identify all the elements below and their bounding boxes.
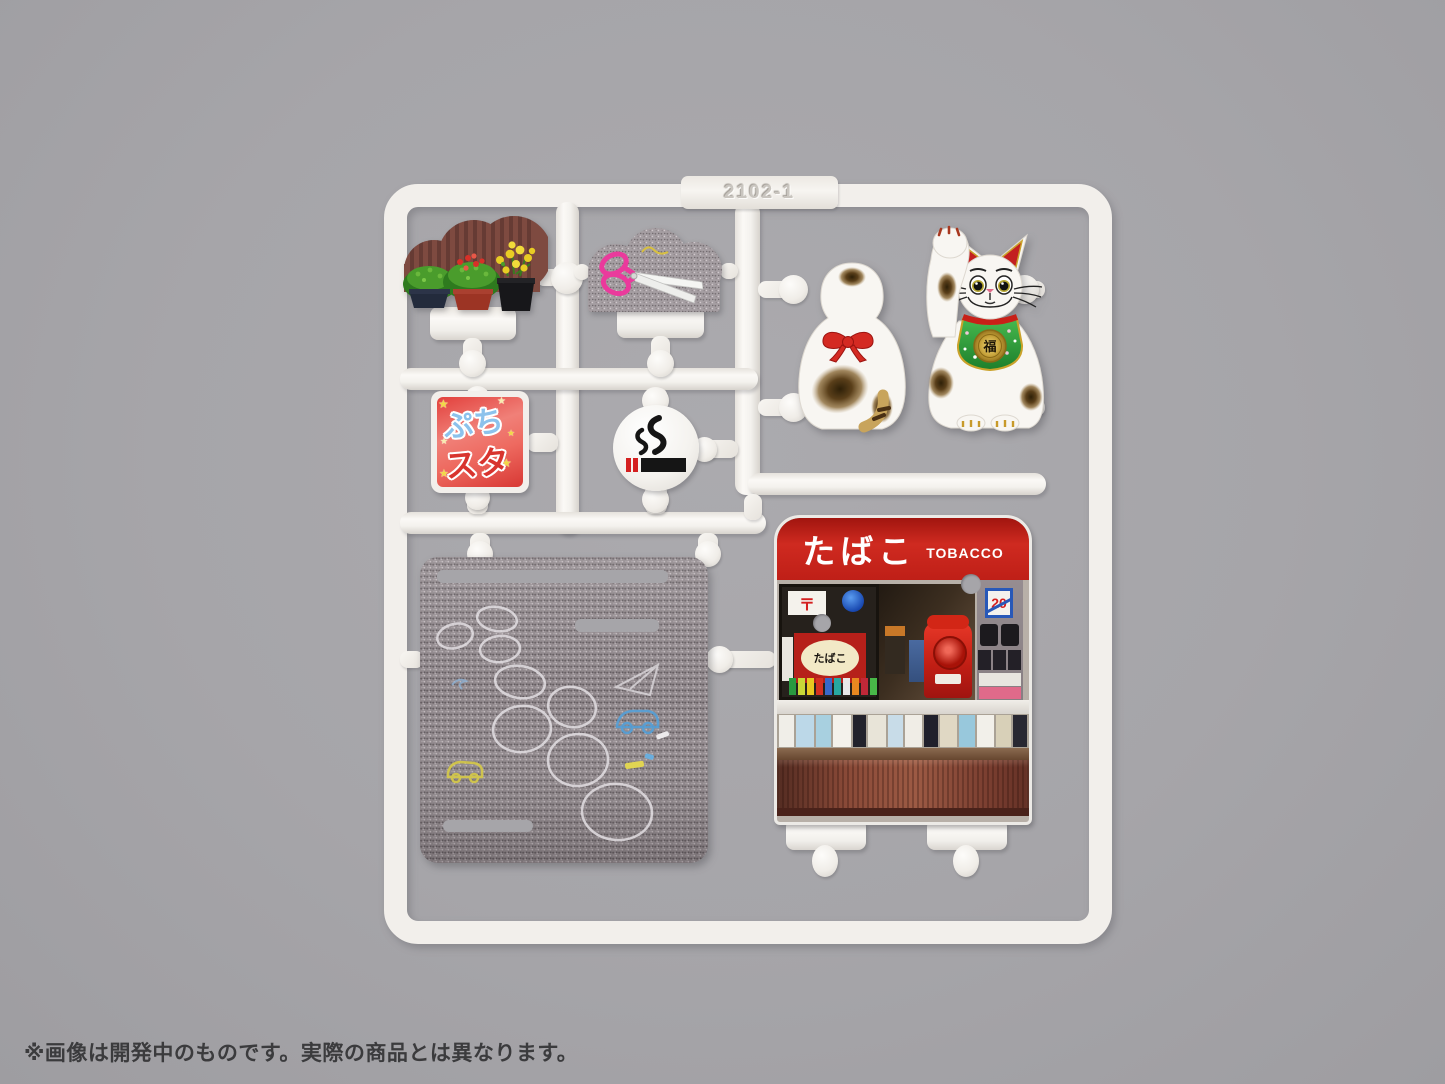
smoking-icon	[613, 405, 699, 491]
disclaimer-text: ※画像は開発中のものです。実際の商品とは異なります。	[24, 1037, 578, 1067]
maneki-neko-front-part: 福	[905, 225, 1045, 435]
arm-spot	[937, 272, 957, 302]
sprue-gate	[527, 433, 558, 452]
sprue-node	[953, 845, 979, 877]
shop-interior	[879, 584, 975, 700]
public-phone	[924, 622, 972, 698]
price-card	[782, 637, 793, 681]
sprue-node	[812, 845, 838, 877]
haunch-spot	[928, 367, 954, 399]
wall-poster	[885, 626, 905, 674]
cigarette-pack-row	[789, 678, 886, 695]
sticker-text-bottom: スタ	[443, 436, 511, 487]
head-spot	[838, 267, 866, 287]
sprue-node	[706, 646, 733, 673]
tobacco-shop-part: たばこ TOBACCO 〒 たばこ	[774, 515, 1032, 825]
postal-mark-sign: 〒	[788, 591, 826, 615]
phone-label	[935, 674, 961, 684]
logo-sticker-part: ★ ★ ★ ★ ★ ★ ★ ぷち スタ	[431, 391, 529, 493]
tobacco-awning-sign: たばこ TOBACCO	[777, 518, 1029, 580]
sprue-gate	[744, 494, 762, 520]
white-pack-stack	[979, 673, 1021, 686]
stone-scissors-part	[582, 226, 726, 314]
bib: 福	[958, 319, 1022, 370]
sprue-bar	[735, 202, 760, 495]
star-icon: ★	[507, 429, 515, 438]
flower-planter-part	[396, 212, 548, 312]
age-20-sticker: 20	[985, 588, 1013, 618]
round-sticker	[842, 590, 864, 612]
tobacco-oval-sign: たばこ	[794, 633, 866, 683]
awning-text-en: TOBACCO	[926, 545, 1004, 561]
awning-text-jp: たばこ	[802, 525, 916, 573]
haunch-spot	[1019, 383, 1043, 411]
pink-pack-stack	[979, 687, 1021, 699]
product-photo: 2102-1	[0, 0, 1445, 1084]
right-shelf-column: 20	[977, 580, 1023, 700]
sprue-bar	[748, 473, 1046, 495]
counter-edge	[777, 748, 1029, 760]
sprue-node	[647, 350, 674, 377]
logo-sticker-face: ★ ★ ★ ★ ★ ★ ★ ぷち スタ	[437, 397, 523, 487]
bib-kanji: 福	[982, 339, 996, 354]
runner-number-tag: 2102-1	[681, 176, 838, 209]
left-display-case: 〒 たばこ	[779, 584, 879, 700]
oval-sign-text: たばこ	[814, 650, 847, 666]
runner-number: 2102-1	[724, 182, 795, 204]
asphalt-ground-part	[420, 557, 708, 863]
wood-base	[777, 760, 1029, 816]
postal-mark: 〒	[799, 591, 815, 615]
stone-base	[588, 228, 722, 312]
counter-pack-row	[777, 714, 1029, 748]
maneki-neko-back-part	[796, 261, 908, 433]
sprue-node	[459, 350, 486, 377]
counter-shelf	[777, 700, 1029, 714]
sprue-bar	[400, 368, 758, 390]
dark-pack-row	[978, 650, 1021, 670]
smoking-sign-part	[613, 405, 699, 491]
sprue-bar	[400, 512, 766, 534]
gate-hole	[961, 574, 981, 594]
gate-hole	[813, 614, 831, 632]
phone-handset	[927, 615, 969, 629]
phone-dial	[933, 636, 967, 670]
